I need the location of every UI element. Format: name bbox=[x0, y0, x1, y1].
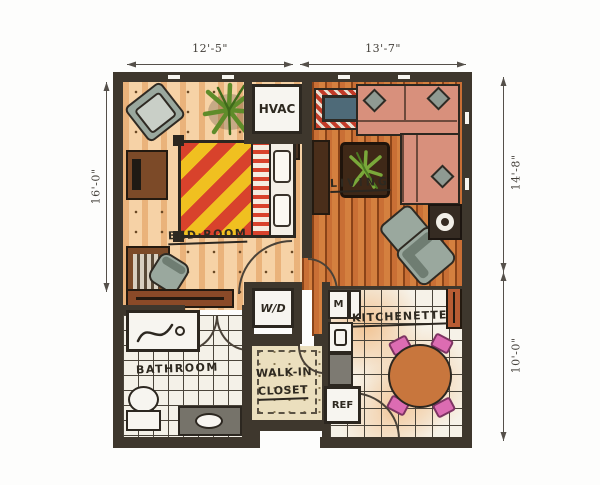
sofa-chaise-section bbox=[400, 133, 460, 205]
dimension-line-top-left bbox=[127, 60, 293, 69]
window-notch bbox=[222, 75, 234, 79]
living-tv-screen bbox=[325, 98, 358, 119]
window-notch bbox=[338, 75, 350, 79]
living-side-table bbox=[428, 204, 462, 240]
bed-pillow bbox=[273, 150, 291, 183]
walk-in-closet-label-line2: CLOSET bbox=[258, 383, 308, 398]
wall-bathroom-right bbox=[242, 305, 252, 437]
kitchen-counter bbox=[328, 353, 353, 386]
dimension-line-right-upper bbox=[499, 77, 508, 272]
dimension-line-top-right bbox=[300, 60, 466, 69]
wall-closet-top-left bbox=[244, 334, 300, 346]
bed-sheet-fold bbox=[253, 143, 271, 235]
window-notch bbox=[465, 112, 469, 124]
wall-bottom-left-segment bbox=[113, 437, 260, 448]
living-media-console bbox=[312, 140, 330, 215]
wall-right bbox=[462, 72, 472, 448]
window-notch bbox=[465, 178, 469, 190]
bathroom-vanity bbox=[178, 406, 242, 436]
bedroom-label: BED·ROOM bbox=[168, 227, 248, 246]
floor-plan-canvas: 12'-5" 13'-7" 16'-0" 14'-8" 10'-0" bbox=[0, 0, 600, 485]
dining-table bbox=[388, 344, 452, 408]
hall-floor-strip bbox=[312, 290, 322, 336]
dimension-top-left: 12'-5" bbox=[127, 42, 293, 55]
window-notch bbox=[398, 75, 410, 79]
bed-blanket bbox=[181, 143, 253, 235]
hvac-label: HVAC bbox=[259, 102, 296, 116]
dimension-left: 16'-0" bbox=[90, 157, 103, 217]
wall-closet-bottom bbox=[252, 420, 330, 431]
refrigerator: REF bbox=[324, 386, 361, 424]
microwave: M bbox=[328, 290, 349, 319]
walk-in-closet-label-text: CLOSET bbox=[258, 383, 309, 401]
bedroom-label-wrap: BED·ROOM bbox=[168, 227, 248, 243]
wall-living-kitchen-line bbox=[330, 286, 462, 289]
wall-jog-left bbox=[252, 420, 260, 448]
living-label: LIVING bbox=[330, 175, 390, 193]
stove-burners bbox=[334, 329, 347, 346]
washer-dryer: W/D bbox=[252, 288, 294, 328]
dimension-right-lower: 10'-0" bbox=[510, 326, 523, 386]
vanity-sink bbox=[195, 413, 223, 429]
bedroom-tv bbox=[132, 159, 141, 190]
wall-bottom-right-segment bbox=[320, 437, 472, 448]
window-notch bbox=[168, 75, 180, 79]
toilet-bowl bbox=[128, 386, 159, 413]
wall-jog-right bbox=[322, 420, 330, 448]
kitchenette-label-wrap: KITCHENETTE bbox=[352, 308, 448, 324]
dimension-right-upper: 14'-8" bbox=[510, 143, 523, 203]
living-label-wrap: LIVING bbox=[330, 175, 390, 190]
wall-bedroom-living-divider bbox=[302, 82, 312, 258]
shower bbox=[126, 310, 200, 352]
washer-dryer-label: W/D bbox=[260, 302, 285, 315]
microwave-label: M bbox=[334, 299, 344, 310]
bedroom-tv-console bbox=[126, 150, 168, 200]
stove bbox=[328, 322, 353, 353]
wall-top bbox=[113, 72, 472, 82]
shower-glyph bbox=[132, 315, 194, 347]
bed bbox=[178, 140, 296, 238]
dimension-line-right-lower bbox=[499, 272, 508, 441]
toilet-tank bbox=[126, 410, 161, 431]
bed-pillow bbox=[273, 194, 291, 227]
refrigerator-label: REF bbox=[332, 400, 353, 411]
walk-in-closet-label-line1: WALK-IN bbox=[256, 365, 313, 380]
hvac-closet: HVAC bbox=[252, 84, 302, 134]
kitchenette-label: KITCHENETTE bbox=[352, 308, 448, 327]
dimension-top-right: 13'-7" bbox=[300, 42, 466, 55]
wall-left bbox=[113, 72, 123, 448]
kitchen-cabinet bbox=[446, 287, 462, 329]
dimension-line-left bbox=[102, 82, 111, 292]
bed-post bbox=[173, 135, 184, 146]
